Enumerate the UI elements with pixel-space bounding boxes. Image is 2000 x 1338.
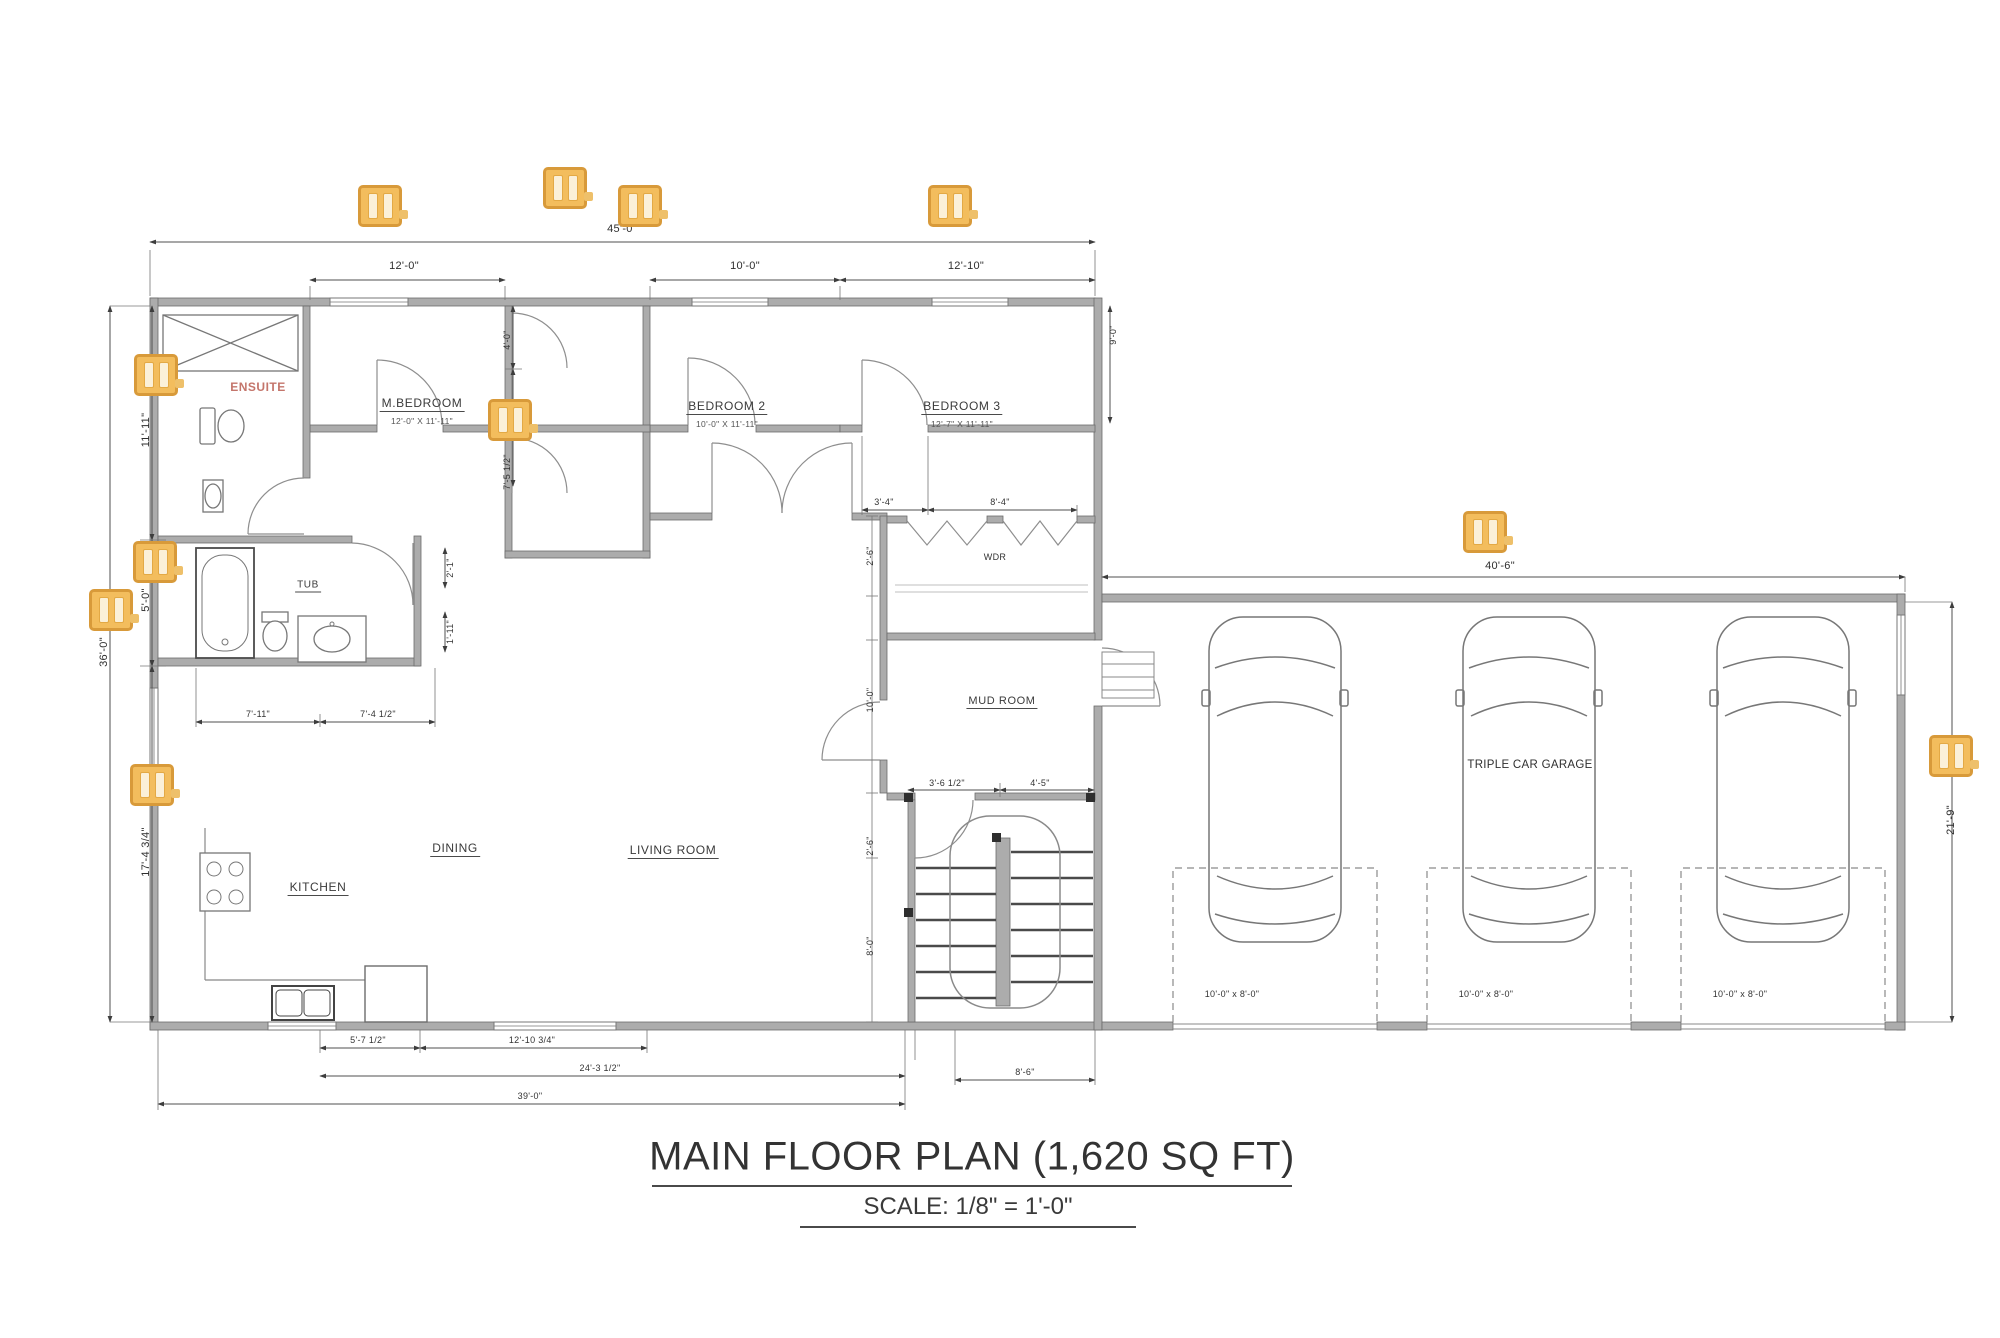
window-tag-icon (133, 541, 177, 583)
dim-garage-bay-2: 10'-0" x 8'-0" (1459, 989, 1514, 999)
drawing-title: MAIN FLOOR PLAN (1,620 SQ FT) (649, 1135, 1295, 1180)
room-label-tub: TUB (295, 580, 321, 593)
dim-bath-left: 7'-11" (246, 709, 270, 719)
room-size-master-bedroom: 12'-0" X 11'-11" (391, 416, 453, 426)
room-label-bedroom2: BEDROOM 2 (686, 399, 767, 415)
scale-underline (800, 1226, 1136, 1228)
window-tag-icon (543, 167, 587, 209)
dim-closet-upper: 4'-0" (502, 330, 512, 349)
dim-top-bedroom3: 12'-10" (948, 260, 984, 272)
room-label-bedroom3: BEDROOM 3 (921, 399, 1002, 415)
dim-bath-small-upper: 2'-1" (445, 558, 455, 577)
toilet-tank (200, 408, 215, 444)
dim-bottom-5: 8'-6" (1015, 1067, 1034, 1077)
window-tag-icon (130, 764, 174, 806)
room-size-bedroom3: 12'-7" X 11'-11" (931, 419, 993, 429)
window-tag-icon (358, 185, 402, 227)
toilet-bowl (218, 410, 244, 442)
dim-stair-left: 3'-6 1/2" (929, 778, 965, 788)
dim-bath-right: 7'-4 1/2" (360, 709, 396, 719)
dim-bottom-4: 39'-0" (518, 1091, 543, 1101)
dim-garage-width: 40'-6" (1485, 560, 1515, 572)
room-label-living-room: LIVING ROOM (628, 843, 719, 859)
car (1456, 617, 1602, 942)
dim-mud-col-4: 8'-0" (865, 936, 875, 955)
dim-bottom-3: 24'-3 1/2" (580, 1063, 621, 1073)
dim-left-upper: 11'-11" (140, 413, 152, 448)
window-tag-icon (928, 185, 972, 227)
dim-garage-bay-1: 10'-0" x 8'-0" (1205, 989, 1260, 999)
room-label-ensuite: ENSUITE (230, 380, 286, 394)
window-tag-icon (488, 399, 532, 441)
sink-basin (205, 484, 221, 508)
garage-door-bays (1173, 868, 1885, 1022)
dim-garage-depth: 21'-9" (1945, 805, 1957, 835)
kitchen-fixtures (200, 828, 427, 1022)
window-tag-icon (618, 185, 662, 227)
dim-mud-col-2: 10'-0" (865, 688, 875, 713)
dim-garage-bay-3: 10'-0" x 8'-0" (1713, 989, 1768, 999)
room-label-garage: TRIPLE CAR GARAGE (1467, 759, 1592, 771)
ensuite-fixtures (163, 315, 298, 512)
drawing-scale: SCALE: 1/8" = 1'-0" (863, 1193, 1072, 1221)
dim-bottom-2: 12'-10 3/4" (509, 1035, 555, 1045)
dim-bedroom3-depth: 9'-0" (1108, 325, 1118, 344)
title-underline (652, 1185, 1292, 1187)
garage-steps (1102, 652, 1154, 698)
door-swings (248, 313, 1160, 858)
dim-stair-right: 4'-5" (1030, 778, 1049, 788)
bath-fixtures (196, 548, 366, 662)
window-tag-icon (134, 354, 178, 396)
dim-mud-col-3: 2'-6" (865, 836, 875, 855)
room-label-dining: DINING (430, 841, 480, 857)
dim-closet-lower: 7'-5 1/2" (502, 454, 512, 490)
window-tag-icon (89, 589, 133, 631)
room-label-kitchen: KITCHEN (288, 880, 349, 896)
bathtub (196, 548, 254, 658)
window-tag-icon (1929, 735, 1973, 777)
dim-top-master: 12'-0" (389, 260, 419, 272)
stove (200, 853, 250, 911)
floor-plan-page: M.BEDROOM 12'-0" X 11'-11" BEDROOM 2 10'… (0, 0, 2000, 1338)
car (1710, 617, 1856, 942)
counter-peninsula (365, 966, 427, 1022)
room-label-wdr-closet: WDR (984, 552, 1006, 562)
car (1202, 617, 1348, 942)
vanity (298, 616, 366, 662)
dim-bottom-1: 5'-7 1/2" (350, 1035, 386, 1045)
room-label-mud-room: MUD ROOM (966, 695, 1037, 709)
garage-contents (1102, 617, 1885, 1022)
dim-bedroom3-door: 3'-4" (874, 497, 893, 507)
room-label-master-bedroom: M.BEDROOM (380, 396, 465, 412)
dim-left-lower: 17'-4 3/4" (140, 827, 152, 876)
dim-left-mid: 5'-0" (140, 588, 152, 611)
window-tag-icon (1463, 511, 1507, 553)
room-size-bedroom2: 10'-0" X 11'-11" (696, 419, 758, 429)
dim-mud-col-1: 2'-6" (865, 546, 875, 565)
toilet-bowl (263, 621, 287, 651)
dim-left-overall: 36'-0" (98, 637, 110, 667)
dim-top-bedroom2: 10'-0" (730, 260, 760, 272)
dim-bath-small-lower: 1'-11" (445, 620, 455, 644)
dim-bedroom3-closet: 8'-4" (990, 497, 1009, 507)
